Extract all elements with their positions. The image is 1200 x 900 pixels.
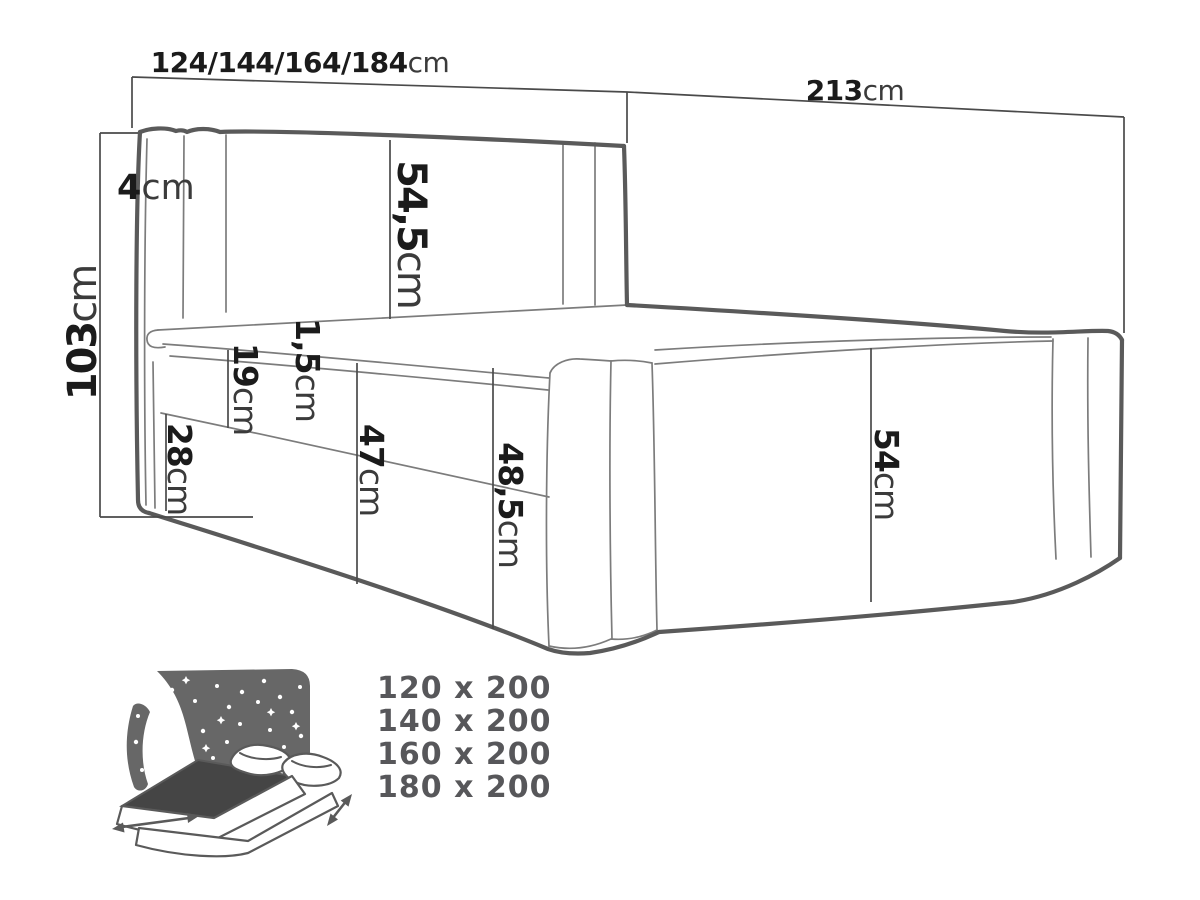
- base-left-edge-line: [153, 362, 155, 508]
- bed-dimension-diagram: 124/144/164/184cm 213cm 103cm 4cm 54,5cm…: [0, 0, 1200, 900]
- headboard-panel-seam: [183, 136, 184, 318]
- mattress-head-edge: [158, 305, 627, 330]
- bed-thin-lines: [145, 135, 1091, 648]
- size-option: 140 x 200: [377, 704, 551, 739]
- foot-seam-lower: [655, 341, 1053, 364]
- dimension-labels: 124/144/164/184cm 213cm 103cm 4cm 54,5cm…: [60, 46, 906, 568]
- headboard-top-edge: [140, 128, 624, 146]
- label-headboard-width: 124/144/164/184cm: [151, 46, 450, 79]
- size-option: 180 x 200: [377, 770, 551, 805]
- label-length: 213cm: [806, 74, 905, 107]
- bed-outline: [136, 128, 1122, 653]
- far-top-edge: [627, 305, 1122, 340]
- corner-bolster-top: [550, 359, 611, 373]
- label-side-front: 47cm: [352, 424, 391, 516]
- corner-bolster-seam: [610, 361, 612, 639]
- size-option: 160 x 200: [377, 737, 551, 772]
- size-option: 120 x 200: [377, 671, 551, 706]
- label-side-total: 48,5cm: [491, 442, 530, 568]
- label-headboard-side: 4cm: [117, 168, 195, 208]
- label-foot-panel: 54cm: [867, 428, 906, 520]
- foot-bottom-edge: [659, 558, 1120, 632]
- label-height: 103cm: [60, 266, 106, 400]
- corner-bolster-right-edge: [652, 363, 657, 630]
- foot-right-edge: [1120, 340, 1122, 558]
- mattress-near-edge: [163, 344, 549, 378]
- size-options-list: 120 x 200 140 x 200 160 x 200 180 x 200: [377, 671, 551, 805]
- foot-panel-seam: [1088, 338, 1091, 557]
- label-mattress-band: 19cm: [226, 343, 265, 435]
- bed-thick-outline: [136, 128, 1122, 653]
- pillow: [231, 745, 291, 775]
- corner-bolster-top: [611, 360, 652, 363]
- label-base-band: 28cm: [160, 423, 199, 515]
- side-bottom-edge: [149, 513, 659, 654]
- bed-night-icon: [112, 669, 352, 856]
- headboard-right-edge: [624, 146, 627, 305]
- mattress-corner-ear: [147, 330, 165, 348]
- corner-bolster-left-edge: [546, 373, 550, 646]
- label-mattress-lip: 1,5cm: [288, 318, 327, 422]
- foot-panel-seam: [1052, 339, 1056, 559]
- bed-dimension-diagram-page: 124/144/164/184cm 213cm 103cm 4cm 54,5cm…: [0, 0, 1200, 900]
- label-headboard-panel: 54,5cm: [388, 160, 434, 308]
- width-dimension-line: [132, 77, 1124, 117]
